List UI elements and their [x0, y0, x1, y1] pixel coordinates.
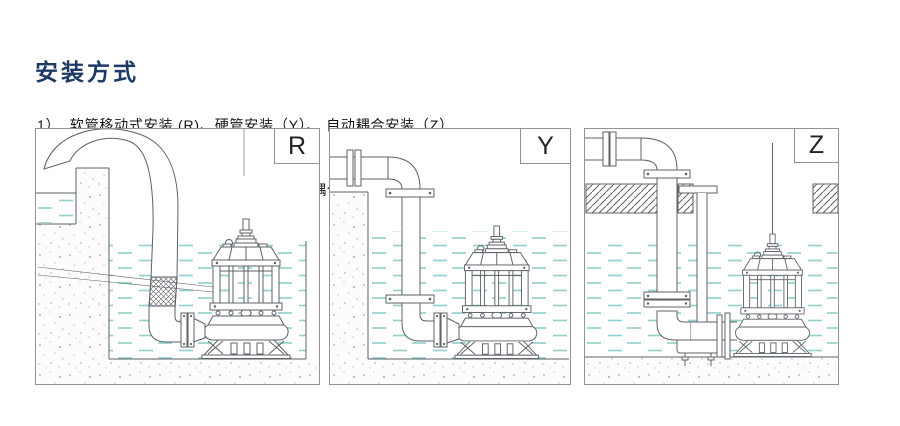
diagram-label-r: R — [274, 129, 319, 164]
water-channel — [37, 195, 75, 223]
diagram-label-y: Y — [520, 129, 570, 164]
submersible-pump-drawing — [202, 219, 290, 359]
pipe-flange — [603, 132, 609, 166]
guide-rail-bracket — [679, 186, 717, 193]
elbow-flange — [434, 313, 440, 347]
concrete-slab-hatch — [586, 184, 658, 213]
top-elbow — [641, 138, 677, 170]
rigid-pipe-installation-drawing — [330, 129, 570, 384]
pipe-flange — [347, 150, 353, 186]
diagram-rigid-pipe-installation-y: Y — [329, 128, 571, 385]
slide-claw — [717, 315, 722, 357]
diagram-hose-installation-r: R — [35, 128, 320, 385]
manual-page: 安装方式 1） 软管移动式安装 (R)、硬管安装（Y）、 自动耦合安装（Z） 2… — [0, 0, 900, 426]
hose-installation-drawing — [36, 129, 319, 384]
auto-coupling-installation-drawing — [585, 129, 838, 384]
diagram-auto-coupling-installation-z: Z — [584, 128, 839, 385]
top-elbow — [388, 157, 420, 189]
diagram-label-z: Z — [794, 129, 838, 163]
hose-clamp-mesh — [149, 277, 177, 309]
hose-flange — [181, 313, 187, 347]
